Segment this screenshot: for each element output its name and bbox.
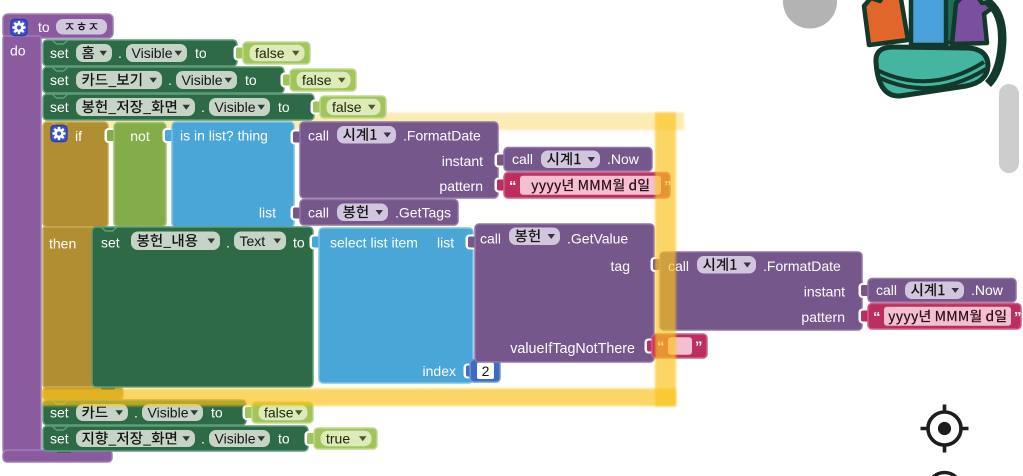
svg-text:Visible: Visible (182, 72, 223, 88)
svg-text:select list item: select list item (330, 235, 418, 251)
svg-text:call: call (876, 282, 897, 298)
svg-text:pattern: pattern (439, 178, 483, 194)
svg-text:to: to (195, 45, 207, 61)
svg-text:instant: instant (442, 153, 483, 169)
svg-text:if: if (75, 128, 82, 144)
svg-text:.FormatDate: .FormatDate (403, 128, 481, 144)
svg-text:instant: instant (804, 284, 845, 300)
svg-text:list: list (437, 235, 454, 251)
svg-text:call: call (308, 128, 329, 144)
svg-text:.: . (201, 431, 205, 447)
svg-text:to: to (293, 235, 305, 251)
svg-text:Visible: Visible (132, 45, 173, 61)
svg-text:set: set (101, 235, 120, 251)
svg-text:call: call (480, 231, 501, 247)
svg-text:to: to (211, 405, 223, 421)
svg-text:Visible: Visible (215, 431, 256, 447)
svg-text:set: set (50, 431, 69, 447)
svg-text:valueIfTagNotThere: valueIfTagNotThere (510, 341, 635, 357)
svg-text:do: do (10, 43, 26, 59)
svg-text:.: . (134, 405, 138, 421)
svg-text:.FormatDate: .FormatDate (763, 258, 841, 274)
svg-text:true: true (326, 431, 350, 447)
svg-text:not: not (130, 128, 150, 144)
svg-text:call: call (308, 205, 329, 221)
svg-text:set: set (50, 45, 69, 61)
svg-text:.Now: .Now (607, 151, 640, 167)
svg-text:index: index (423, 363, 456, 379)
svg-text:.: . (201, 99, 205, 115)
svg-text:.: . (226, 235, 230, 251)
svg-text:”: ” (1014, 309, 1022, 326)
svg-text:.: . (118, 45, 122, 61)
svg-text:.: . (168, 72, 172, 88)
svg-text:.GetTags: .GetTags (395, 205, 451, 221)
svg-text:false: false (255, 45, 285, 61)
svg-text:list: list (259, 205, 276, 221)
svg-text:Text: Text (240, 233, 266, 249)
svg-text:then: then (49, 236, 76, 252)
svg-text:“: “ (509, 178, 517, 195)
svg-text:false: false (264, 405, 294, 421)
svg-text:is in list? thing: is in list? thing (180, 128, 268, 144)
svg-text:pattern: pattern (801, 309, 845, 325)
svg-text:to: to (278, 99, 290, 115)
svg-text:Visible: Visible (148, 405, 189, 421)
svg-text:to: to (278, 431, 290, 447)
svg-text:set: set (50, 72, 69, 88)
svg-text:false: false (332, 99, 362, 115)
svg-text:”: ” (695, 339, 703, 356)
svg-text:false: false (302, 72, 332, 88)
svg-text:2: 2 (482, 363, 490, 379)
svg-text:set: set (50, 99, 69, 115)
svg-text:“: “ (873, 309, 881, 326)
svg-text:.Now: .Now (971, 282, 1004, 298)
svg-text:call: call (512, 151, 533, 167)
svg-text:to: to (38, 19, 50, 35)
svg-text:to: to (245, 72, 257, 88)
svg-text:set: set (50, 405, 69, 421)
svg-text:tag: tag (611, 258, 630, 274)
svg-text:.GetValue: .GetValue (567, 231, 628, 247)
svg-text:Visible: Visible (215, 99, 256, 115)
